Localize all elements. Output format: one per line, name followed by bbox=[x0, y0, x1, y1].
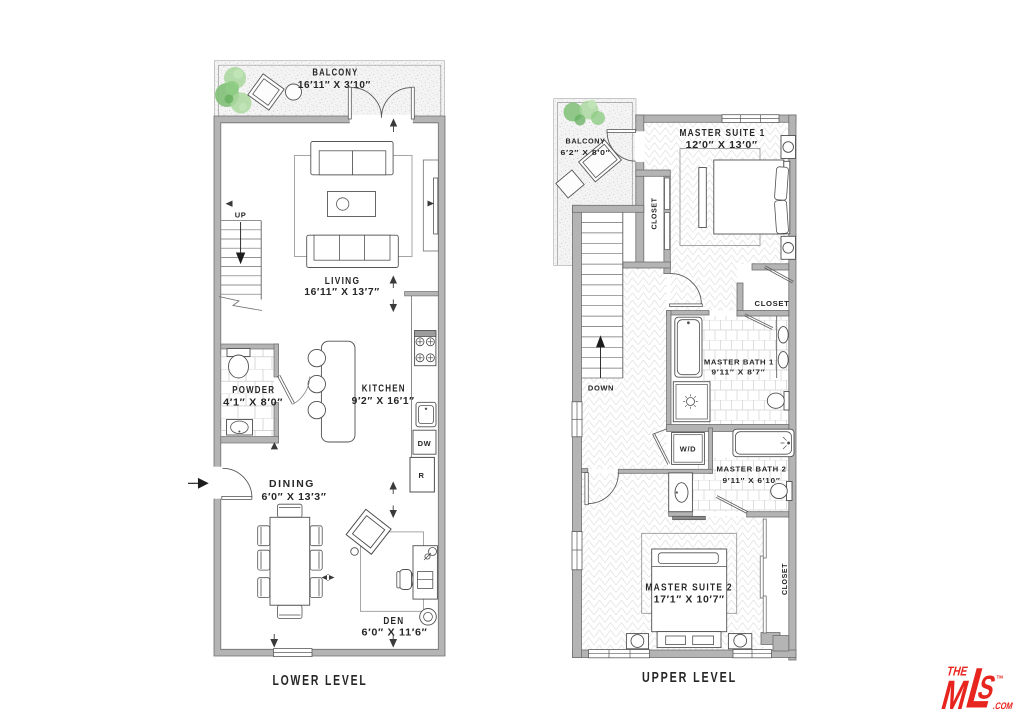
svg-text:LIVING: LIVING bbox=[325, 275, 361, 287]
svg-text:MASTER BATH 1: MASTER BATH 1 bbox=[704, 358, 774, 367]
svg-text:MASTER SUITE 2: MASTER SUITE 2 bbox=[645, 581, 733, 593]
svg-text:6′0″ X 13′3″: 6′0″ X 13′3″ bbox=[262, 492, 327, 503]
svg-text:6′2″ X 8′0″: 6′2″ X 8′0″ bbox=[561, 148, 611, 157]
svg-text:DW: DW bbox=[418, 439, 432, 448]
svg-text:POWDER: POWDER bbox=[232, 384, 275, 396]
svg-text:UPPER LEVEL: UPPER LEVEL bbox=[642, 670, 737, 686]
svg-text:MASTER SUITE 1: MASTER SUITE 1 bbox=[680, 127, 766, 139]
svg-text:4′1″ X 8′0″: 4′1″ X 8′0″ bbox=[223, 398, 283, 409]
svg-text:BALCONY: BALCONY bbox=[566, 137, 606, 146]
svg-text:9′11″ X 8′7″: 9′11″ X 8′7″ bbox=[711, 368, 765, 377]
svg-text:UP: UP bbox=[235, 211, 247, 220]
svg-text:DOWN: DOWN bbox=[588, 384, 614, 393]
svg-text:.COM: .COM bbox=[992, 700, 1014, 711]
svg-text:CLOSET: CLOSET bbox=[780, 563, 789, 595]
svg-text:MASTER BATH 2: MASTER BATH 2 bbox=[717, 465, 787, 474]
svg-text:16′11″ X 13′7″: 16′11″ X 13′7″ bbox=[304, 287, 380, 298]
svg-text:17′1″ X 10′7″: 17′1″ X 10′7″ bbox=[654, 595, 725, 606]
svg-text:DINING: DINING bbox=[269, 478, 315, 490]
svg-text:TM: TM bbox=[997, 675, 1004, 680]
svg-text:W/D: W/D bbox=[680, 445, 696, 454]
svg-text:LOWER LEVEL: LOWER LEVEL bbox=[273, 673, 368, 689]
svg-text:BALCONY: BALCONY bbox=[312, 67, 358, 79]
svg-text:9′11″ X 6′10″: 9′11″ X 6′10″ bbox=[723, 476, 781, 485]
svg-text:9′2″ X 16′1″: 9′2″ X 16′1″ bbox=[352, 396, 415, 407]
svg-text:KITCHEN: KITCHEN bbox=[362, 383, 406, 395]
svg-text:12′0″ X 13′0″: 12′0″ X 13′0″ bbox=[686, 140, 758, 151]
svg-text:6′0″ X 11′6″: 6′0″ X 11′6″ bbox=[362, 628, 428, 639]
svg-text:R: R bbox=[418, 471, 424, 480]
svg-text:CLOSET: CLOSET bbox=[755, 299, 790, 308]
svg-text:16′11″ X 3′10″: 16′11″ X 3′10″ bbox=[298, 80, 371, 91]
svg-text:CLOSET: CLOSET bbox=[650, 198, 659, 230]
svg-text:DEN: DEN bbox=[383, 615, 404, 627]
